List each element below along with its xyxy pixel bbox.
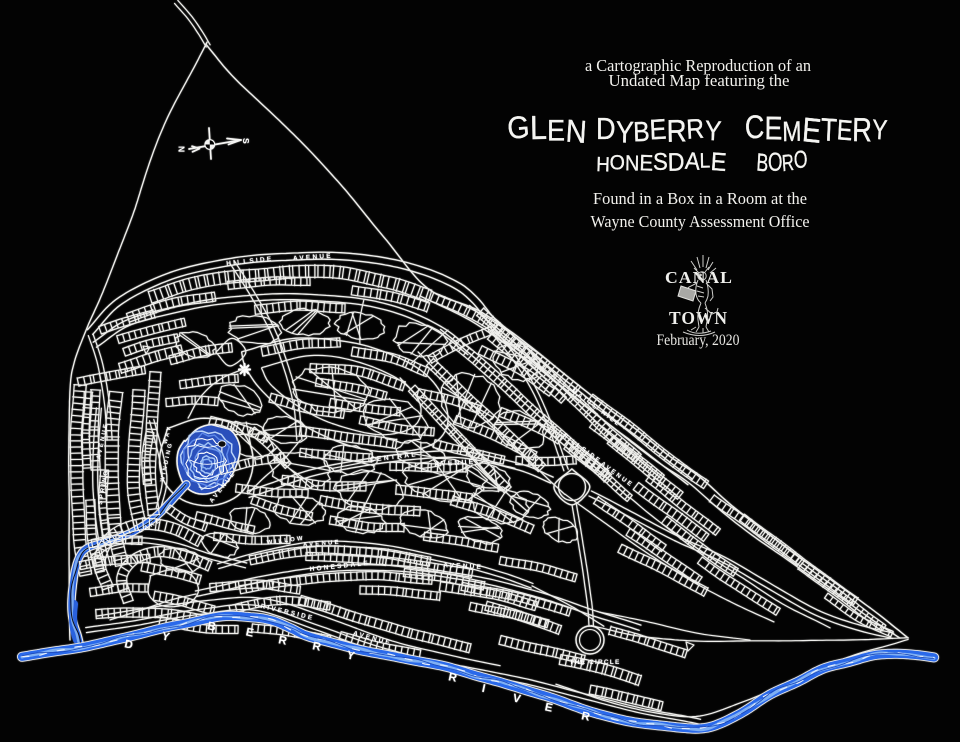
svg-text:S: S — [241, 138, 251, 144]
svg-text:Found in a Box in a Room at th: Found in a Box in a Room at the — [593, 189, 807, 208]
svg-text:BORO: BORO — [755, 146, 808, 177]
svg-text:Wayne County Assessment Office: Wayne County Assessment Office — [591, 212, 810, 231]
svg-text:Undated Map featuring the: Undated Map featuring the — [609, 71, 790, 90]
svg-text:GLEN: GLEN — [506, 109, 588, 149]
svg-text:N: N — [177, 146, 187, 152]
svg-text:February, 2020: February, 2020 — [657, 332, 740, 349]
svg-text:CANAL: CANAL — [665, 268, 733, 287]
svg-text:CEMETERY: CEMETERY — [744, 108, 888, 151]
svg-text:THE CIRCLE: THE CIRCLE — [570, 659, 621, 666]
